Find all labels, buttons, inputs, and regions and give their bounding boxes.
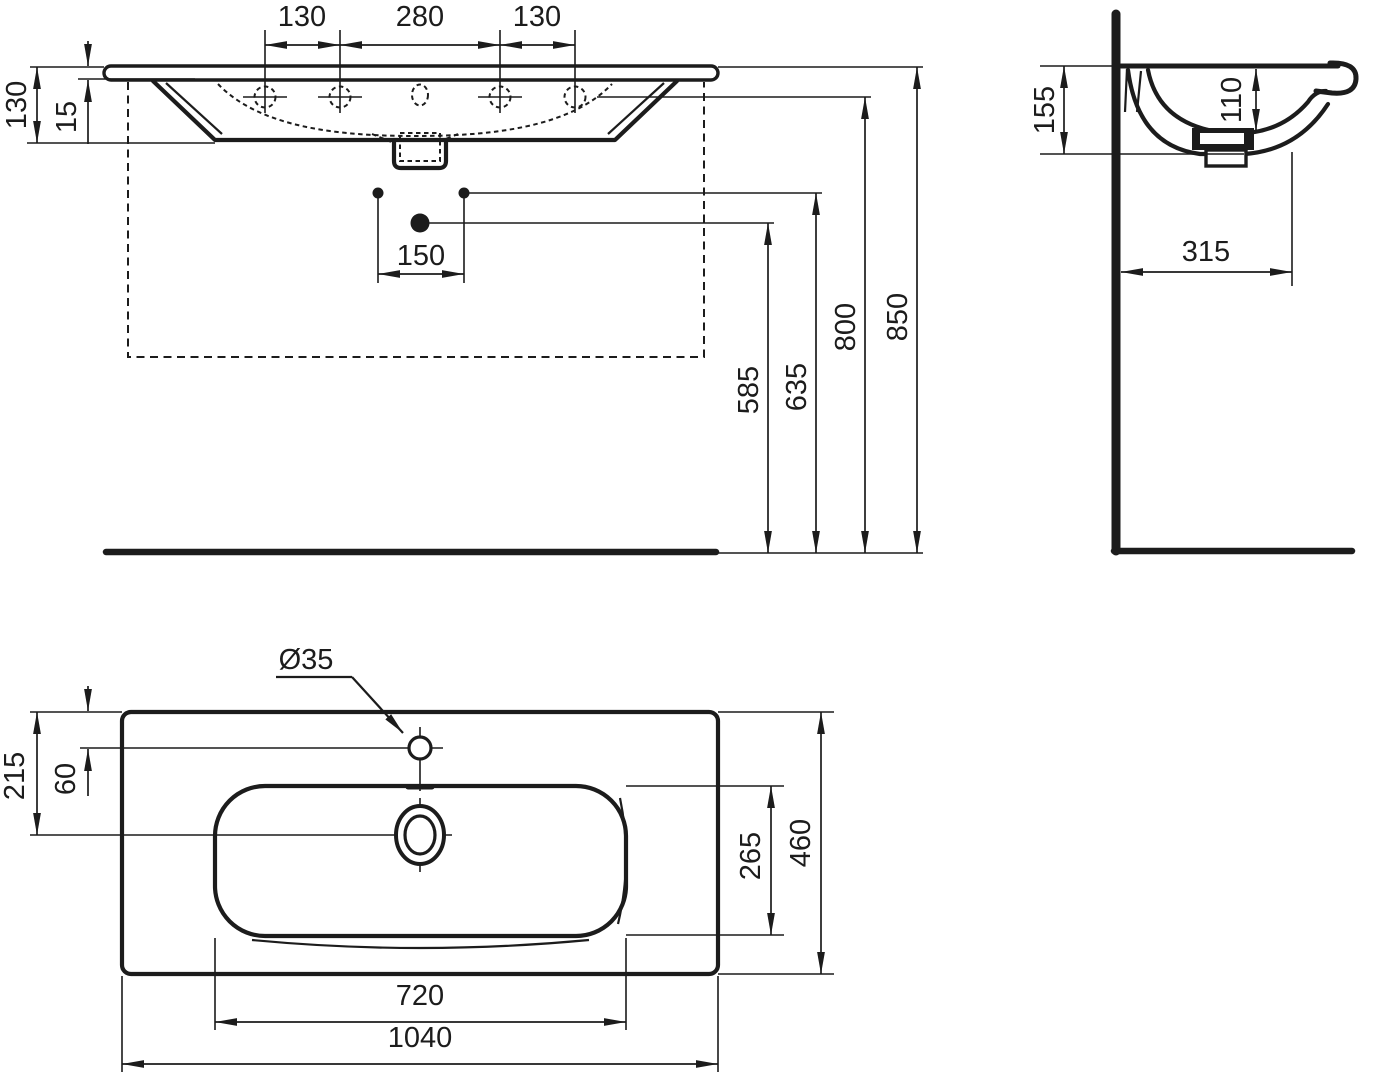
dim-label-585: 585 bbox=[733, 366, 765, 414]
dim-label-60: 60 bbox=[50, 763, 82, 795]
dim-label-155: 155 bbox=[1029, 86, 1061, 134]
dim-label-720: 720 bbox=[396, 980, 444, 1012]
dim-label-850: 850 bbox=[882, 293, 914, 341]
dim-widths: 720 1040 bbox=[122, 938, 718, 1072]
plan-view: Ø35 60 215 265 460 720 1040 bbox=[0, 644, 834, 1072]
dim-label-265: 265 bbox=[735, 832, 767, 880]
dim-label-150: 150 bbox=[397, 240, 445, 272]
dim-label-635: 635 bbox=[781, 363, 813, 411]
drain-hidden-box bbox=[400, 133, 440, 161]
side-view: 155 110 315 bbox=[1029, 14, 1356, 551]
bowl-bottom-contour bbox=[252, 940, 589, 948]
basin-body-inner-right bbox=[608, 83, 664, 134]
dim-label-315: 315 bbox=[1182, 236, 1230, 268]
bowl-hidden-contour bbox=[218, 84, 612, 136]
drain-centerlines bbox=[30, 798, 452, 872]
outlet-dot bbox=[411, 214, 430, 233]
dim-label-1040: 1040 bbox=[388, 1022, 453, 1054]
dim-label-130-left: 130 bbox=[278, 1, 326, 33]
dim-ceramic-height: 130 15 bbox=[1, 41, 215, 144]
overflow-hole bbox=[412, 85, 428, 106]
tap-hole-centerlines bbox=[80, 727, 443, 791]
washbasin-dimension-drawing: 130 280 130 130 15 150 bbox=[0, 0, 1376, 1080]
tap-holes bbox=[243, 85, 586, 108]
basin-rim-slab bbox=[104, 66, 718, 80]
dim-label-215: 215 bbox=[0, 752, 31, 800]
dim-label-15: 15 bbox=[51, 101, 83, 133]
fixing-dot-right bbox=[459, 188, 470, 199]
drain-sump-slot bbox=[1200, 133, 1244, 144]
dim-label-d35: Ø35 bbox=[279, 644, 334, 676]
leader-arrow bbox=[352, 677, 403, 733]
tap-hole-plan bbox=[409, 737, 431, 759]
dim-label-130-right: 130 bbox=[513, 1, 561, 33]
basin-body-inner-left bbox=[166, 83, 222, 134]
front-view: 130 280 130 130 15 150 bbox=[1, 1, 923, 553]
dim-wall-distance: 315 bbox=[1121, 152, 1292, 286]
fixing-points: 150 bbox=[373, 188, 470, 284]
drain-flange bbox=[1206, 150, 1246, 166]
dim-bowl-depth: 110 bbox=[1216, 69, 1256, 131]
dim-depths: 265 460 bbox=[626, 712, 834, 974]
dim-back-offsets: 60 215 bbox=[0, 686, 122, 835]
dim-tap-spacing: 130 280 130 bbox=[265, 1, 575, 113]
fixing-dot-left bbox=[373, 188, 384, 199]
basin-body-outline bbox=[153, 81, 677, 140]
dim-label-280: 280 bbox=[396, 1, 444, 33]
dim-tap-hole-diameter: Ø35 bbox=[276, 644, 403, 733]
dim-label-110: 110 bbox=[1216, 77, 1248, 123]
dim-label-130-height: 130 bbox=[1, 81, 33, 129]
dim-label-800: 800 bbox=[830, 303, 862, 351]
drain-outlet-box bbox=[394, 140, 446, 168]
technical-drawing-page: 130 280 130 130 15 150 bbox=[0, 0, 1376, 1080]
dim-label-460: 460 bbox=[785, 819, 817, 867]
plan-holes bbox=[30, 727, 452, 872]
drain-inner-plan bbox=[405, 816, 435, 854]
